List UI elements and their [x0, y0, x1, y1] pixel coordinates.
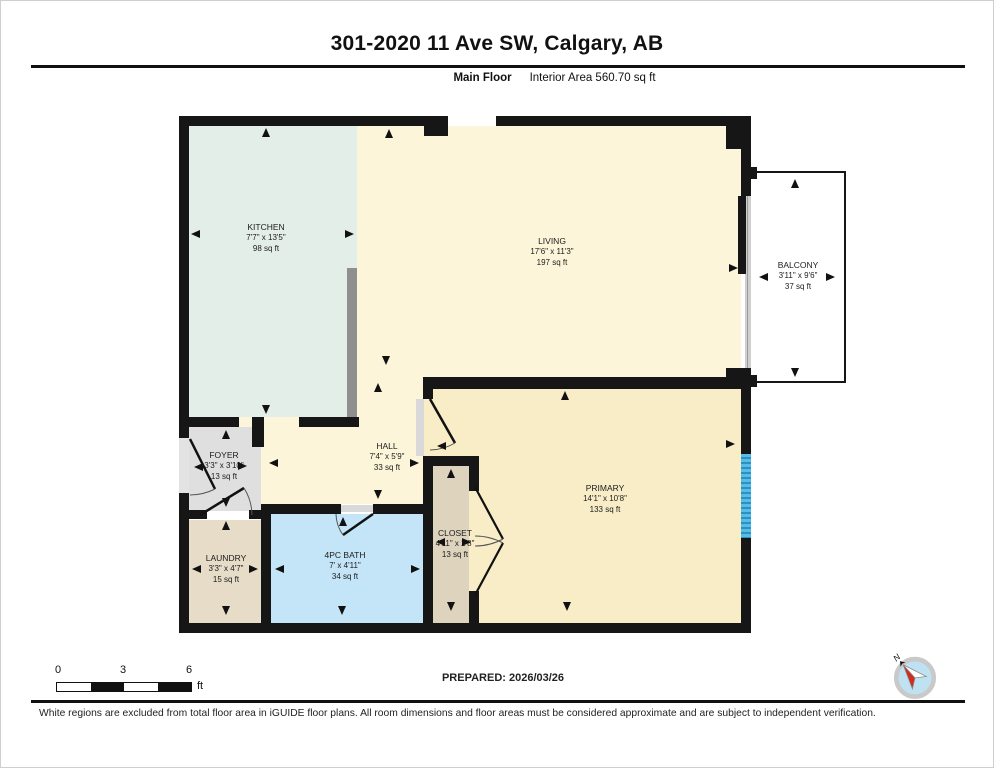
- wall-segment: [179, 623, 751, 633]
- wall-segment: [423, 377, 433, 399]
- measure-arrow: [826, 273, 835, 281]
- measure-arrow: [192, 565, 201, 573]
- measure-arrow: [447, 469, 455, 478]
- floor-label: Main Floor: [453, 72, 511, 84]
- room-label-living: LIVING 17'6" x 11'3" 197 sq ft: [492, 236, 612, 268]
- room-kitchen: [189, 126, 357, 417]
- wall-segment: [469, 456, 479, 491]
- measure-arrow: [191, 230, 200, 238]
- measure-arrow: [726, 440, 735, 448]
- measure-arrow: [791, 179, 799, 188]
- room-label-foyer: FOYER 3'3" x 3'10" 13 sq ft: [164, 450, 284, 482]
- measure-arrow: [563, 602, 571, 611]
- wall-segment: [179, 116, 189, 438]
- room-label-hall: HALL 7'4" x 5'9" 33 sq ft: [327, 441, 447, 473]
- wall-segment: [496, 116, 751, 126]
- floor-subtitle: Main Floor Interior Area 560.70 sq ft: [1, 72, 993, 84]
- measure-arrow: [339, 517, 347, 526]
- page-title: 301-2020 11 Ave SW, Calgary, AB: [1, 32, 993, 56]
- interior-area-label: Interior Area 560.70 sq ft: [530, 72, 656, 84]
- measure-arrow: [238, 462, 247, 470]
- wall-segment: [469, 591, 479, 633]
- wall-segment: [373, 504, 423, 514]
- measure-arrow: [222, 430, 230, 439]
- measure-arrow: [345, 230, 354, 238]
- measure-arrow: [269, 459, 278, 467]
- room-label-laundry: LAUNDRY 3'3" x 4'7" 15 sq ft: [166, 553, 286, 585]
- measure-arrow: [374, 383, 382, 392]
- measure-arrow: [447, 602, 455, 611]
- room-label-primary: PRIMARY 14'1" x 10'8" 133 sq ft: [545, 483, 665, 515]
- measure-arrow: [222, 521, 230, 530]
- scale-bar: [56, 682, 192, 692]
- kitchen-counter: [347, 268, 357, 417]
- measure-arrow: [411, 565, 420, 573]
- door-swing-arrow: [437, 442, 446, 450]
- footer-divider: [31, 700, 965, 703]
- wall-segment: [741, 538, 751, 633]
- measure-arrow: [759, 273, 768, 281]
- measure-arrow: [410, 459, 419, 467]
- room-label-kitchen: KITCHEN 7'7" x 13'5" 98 sq ft: [206, 222, 326, 254]
- wall-segment: [741, 116, 751, 196]
- scale-tick-3: 3: [116, 664, 130, 676]
- window: [741, 454, 751, 538]
- measure-arrow: [222, 498, 230, 507]
- wall-segment: [252, 417, 264, 447]
- measure-arrow: [382, 356, 390, 365]
- measure-arrow: [374, 490, 382, 499]
- room-label-bath: 4PC BATH 7' x 4'11" 34 sq ft: [285, 550, 405, 582]
- scale-tick-0: 0: [51, 664, 65, 676]
- wall-segment: [261, 504, 341, 514]
- measure-arrow: [262, 405, 270, 414]
- measure-arrow: [791, 368, 799, 377]
- measure-arrow: [729, 264, 738, 272]
- door-threshold: [341, 505, 373, 512]
- scale-unit: ft: [197, 680, 203, 692]
- disclaimer-text: White regions are excluded from total fl…: [39, 708, 973, 719]
- floor-plan-page: 301-2020 11 Ave SW, Calgary, AB Main Flo…: [0, 0, 994, 768]
- room-label-closet: CLOSET 4'11" x 2'8" 13 sq ft: [395, 528, 515, 560]
- compass-icon: N: [885, 646, 945, 706]
- measure-arrow: [222, 606, 230, 615]
- wall-segment: [189, 510, 207, 519]
- wall-segment: [299, 417, 359, 427]
- scale-tick-6: 6: [182, 664, 196, 676]
- measure-arrow: [561, 391, 569, 400]
- measure-arrow: [194, 463, 203, 471]
- measure-arrow: [385, 129, 393, 138]
- measure-arrow: [338, 606, 346, 615]
- wall-segment: [179, 116, 424, 126]
- header-divider: [31, 65, 965, 68]
- measure-arrow: [462, 538, 471, 546]
- measure-arrow: [262, 128, 270, 137]
- measure-arrow: [249, 565, 258, 573]
- wall-segment: [427, 377, 751, 389]
- measure-arrow: [436, 538, 445, 546]
- prepared-date: PREPARED: 2026/03/26: [383, 672, 623, 684]
- wall-segment: [189, 417, 239, 427]
- measure-arrow: [275, 565, 284, 573]
- wall-segment: [424, 116, 448, 136]
- room-label-balcony: BALCONY 3'11" x 9'6" 37 sq ft: [738, 260, 858, 292]
